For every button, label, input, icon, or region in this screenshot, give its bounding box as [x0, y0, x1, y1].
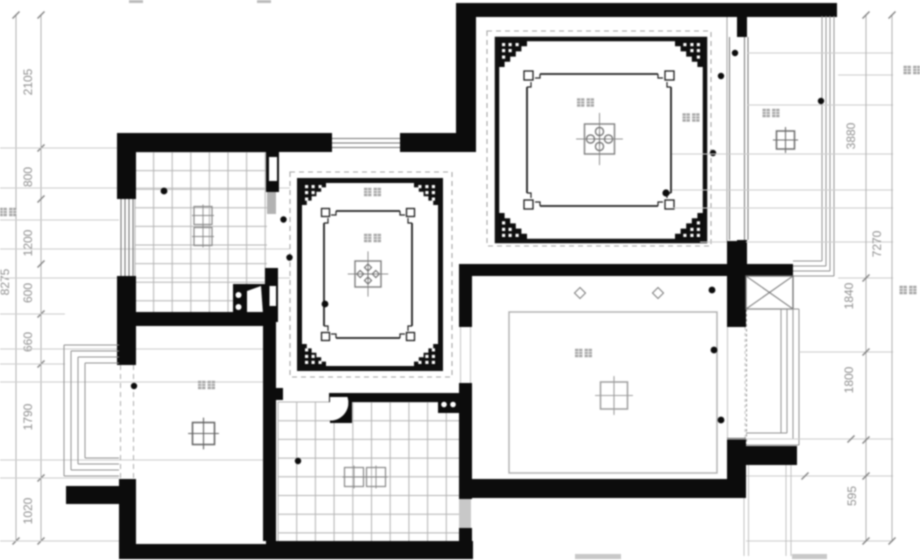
- svg-text:1790: 1790: [21, 403, 35, 430]
- svg-text:2105: 2105: [21, 68, 35, 95]
- svg-text:595: 595: [845, 486, 859, 506]
- svg-text:1020: 1020: [21, 497, 35, 524]
- svg-text:1200: 1200: [21, 229, 35, 256]
- svg-text:3880: 3880: [844, 122, 858, 149]
- svg-text:800: 800: [21, 167, 35, 187]
- svg-text:8275: 8275: [0, 268, 12, 295]
- svg-text:7270: 7270: [870, 230, 884, 257]
- svg-text:600: 600: [21, 283, 35, 303]
- svg-text:1800: 1800: [842, 366, 856, 393]
- svg-text:1840: 1840: [842, 282, 856, 309]
